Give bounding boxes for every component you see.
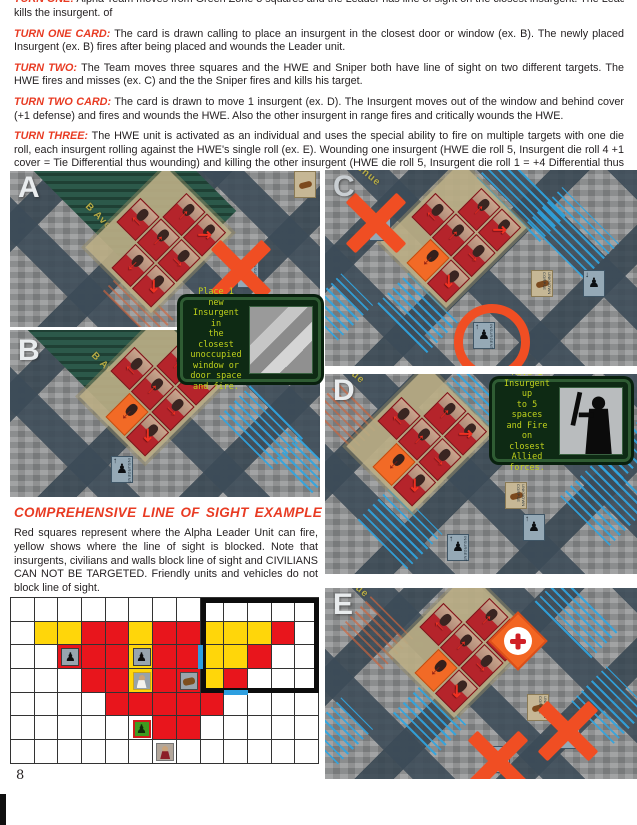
grid-cell bbox=[35, 598, 59, 622]
grid-cell bbox=[153, 645, 177, 669]
grid-cell bbox=[248, 598, 272, 622]
unit-vehicle bbox=[180, 672, 198, 690]
grid-cell bbox=[272, 669, 296, 693]
grid-cell bbox=[272, 622, 296, 646]
chip-label: INSURGENT bbox=[463, 536, 468, 561]
grid-cell bbox=[35, 645, 59, 669]
grid-cell bbox=[295, 693, 319, 717]
los-heading: COMPREHENSIVE LINE OF SIGHT EXAMPLE bbox=[14, 505, 322, 520]
killed-x-marker bbox=[467, 730, 529, 779]
grid-cell bbox=[248, 669, 272, 693]
unit-leader: ♟ bbox=[133, 720, 151, 738]
grid-cell bbox=[35, 693, 59, 717]
grid-cell bbox=[272, 598, 296, 622]
grid-cell bbox=[11, 645, 35, 669]
grid-cell bbox=[272, 716, 296, 740]
window-marker bbox=[224, 690, 248, 695]
board-example-e: E ue ↑↗←↑→↓↘ UNKNOWN CORPSE ♟ ↑ ♟ bbox=[325, 588, 637, 779]
grid-cell bbox=[106, 740, 130, 764]
unit-civilian bbox=[133, 672, 151, 690]
grid-cell bbox=[82, 740, 106, 764]
corpse-icon bbox=[298, 180, 312, 189]
panel-label-a: A bbox=[18, 173, 40, 203]
chip-label: INSURGENT bbox=[127, 458, 132, 483]
grid-cell bbox=[248, 622, 272, 646]
grid-cell bbox=[248, 716, 272, 740]
grid-cell bbox=[153, 669, 177, 693]
grid-cell bbox=[201, 598, 225, 622]
grid-cell bbox=[106, 645, 130, 669]
grid-cell bbox=[35, 622, 59, 646]
grid-cell bbox=[153, 598, 177, 622]
board-example-c: C enue ↑↗←↑→↓↘ ↑ ♟ UNKNOWN CORPSE ↓ ♟ ↑ … bbox=[325, 170, 637, 366]
grid-cell bbox=[58, 716, 82, 740]
grid-cell bbox=[106, 693, 130, 717]
turn-one-tail: kills the insurgent. of bbox=[14, 7, 624, 21]
grid-cell bbox=[295, 740, 319, 764]
window-marker bbox=[198, 645, 203, 669]
target-circle-marker bbox=[454, 304, 530, 366]
street-name: enue bbox=[355, 170, 383, 189]
grid-cell bbox=[224, 598, 248, 622]
action-card-move-insurgent: Move 1 Insurgent up to 5 spaces and Fire… bbox=[492, 379, 631, 462]
grid-cell bbox=[106, 669, 130, 693]
grid-cell bbox=[295, 716, 319, 740]
grid-cell bbox=[295, 622, 319, 646]
vehicle-icon bbox=[182, 676, 195, 685]
blue-hatch bbox=[325, 697, 373, 764]
action-card-text: Place 1 new Insurgent in the closest uno… bbox=[188, 287, 244, 392]
turn-one-label: TURN ONE: bbox=[14, 0, 74, 5]
page-number: 8 bbox=[16, 768, 24, 783]
grid-cell bbox=[177, 598, 201, 622]
grid-cell bbox=[224, 693, 248, 717]
grid-cell bbox=[224, 716, 248, 740]
insurgent-chip: ↑ ♟ bbox=[523, 514, 545, 541]
insurgent-figure-icon: ♟ bbox=[528, 521, 540, 534]
grid-cell bbox=[224, 669, 248, 693]
page-edge-mark bbox=[0, 794, 6, 825]
grid-cell bbox=[129, 693, 153, 717]
insurgent-silhouette-icon bbox=[559, 387, 623, 455]
grid-cell bbox=[58, 740, 82, 764]
grid-cell bbox=[82, 693, 106, 717]
turn-two-card-label: TURN TWO CARD: bbox=[14, 96, 111, 108]
panel-label-e: E bbox=[333, 590, 353, 620]
grid-cell bbox=[58, 693, 82, 717]
grid-cell bbox=[153, 693, 177, 717]
grid-cell bbox=[248, 645, 272, 669]
satellite-photo-icon bbox=[249, 306, 313, 374]
turn-one-card-label: TURN ONE CARD: bbox=[14, 28, 110, 40]
action-card-text: Move 1 Insurgent up to 5 spaces and Fire… bbox=[500, 374, 554, 473]
grid-cell bbox=[106, 598, 130, 622]
grid-cell bbox=[129, 622, 153, 646]
move-arrow-icon: ↑ bbox=[113, 457, 117, 465]
grid-cell bbox=[201, 645, 225, 669]
grid-cell bbox=[177, 693, 201, 717]
grid-cell bbox=[201, 622, 225, 646]
grid-cell bbox=[295, 669, 319, 693]
grid-cell bbox=[11, 716, 35, 740]
turn-three-label: TURN THREE: bbox=[14, 130, 88, 142]
grid-cell bbox=[11, 740, 35, 764]
corpse-chip: UNKNOWN CORPSE bbox=[505, 482, 527, 509]
civilian-robe-icon bbox=[137, 680, 147, 688]
panel-label-d: D bbox=[333, 376, 355, 406]
grid-cell bbox=[224, 622, 248, 646]
grid-cell bbox=[201, 693, 225, 717]
turn-one-card-paragraph: TURN ONE CARD: The card is drawn calling… bbox=[14, 28, 624, 55]
grid-cell bbox=[58, 669, 82, 693]
unit-insurgent: ♟ bbox=[133, 648, 151, 666]
grid-cell bbox=[35, 669, 59, 693]
chip-label: UNKNOWN CORPSE bbox=[542, 272, 552, 296]
clipped-first-line: TURN ONE: Alpha Team moves from Green Zo… bbox=[14, 0, 624, 7]
turn-one-text: Alpha Team moves from Green Zone 3 squar… bbox=[76, 0, 624, 5]
grid-cell bbox=[82, 645, 106, 669]
insurgent-chip: ↑ ♟ INSURGENT bbox=[447, 534, 469, 561]
grid-cell bbox=[201, 669, 225, 693]
grid-cell bbox=[224, 740, 248, 764]
grid-cell bbox=[248, 693, 272, 717]
blue-hatch bbox=[535, 588, 620, 658]
unit-civilian2 bbox=[156, 743, 174, 761]
move-arrow-icon: ↑ bbox=[449, 535, 453, 543]
grid-cell bbox=[177, 740, 201, 764]
turn-two-paragraph: TURN TWO: The Team moves three squares a… bbox=[14, 62, 624, 89]
grid-cell bbox=[35, 740, 59, 764]
blue-hatch bbox=[325, 273, 373, 340]
move-arrow-icon: ↓ bbox=[585, 271, 589, 279]
unit-insurgent: ♟ bbox=[61, 648, 79, 666]
panel-label-c: C bbox=[333, 172, 355, 202]
los-grid: ♟♟♟ bbox=[10, 597, 319, 764]
grid-cell bbox=[58, 622, 82, 646]
grid-cell bbox=[82, 598, 106, 622]
grid-cell bbox=[177, 645, 201, 669]
grid-cell bbox=[201, 740, 225, 764]
sniper-target-chip: ↓ ♟ bbox=[583, 270, 605, 297]
grid-cell bbox=[272, 693, 296, 717]
grid-cell bbox=[58, 598, 82, 622]
grid-cell bbox=[177, 622, 201, 646]
grid-cell bbox=[153, 622, 177, 646]
insurgent-figure-icon: ♟ bbox=[588, 277, 600, 290]
grid-cell bbox=[224, 645, 248, 669]
grid-cell bbox=[82, 622, 106, 646]
grid-cell bbox=[272, 740, 296, 764]
wound-cross-icon bbox=[504, 627, 532, 655]
turn-two-label: TURN TWO: bbox=[14, 62, 77, 74]
grid-cell bbox=[129, 598, 153, 622]
grid-cell bbox=[11, 622, 35, 646]
move-arrow-icon: ↑ bbox=[525, 515, 529, 523]
los-paragraph: Red squares represent where the Alpha Le… bbox=[14, 527, 318, 596]
grid-cell bbox=[201, 716, 225, 740]
turn-two-card-paragraph: TURN TWO CARD: The card is drawn to move… bbox=[14, 96, 624, 123]
chip-label: UNKNOWN CORPSE bbox=[516, 484, 526, 508]
grid-cell bbox=[295, 598, 319, 622]
grid-cell bbox=[11, 598, 35, 622]
rulebook-page: { "page": {"number": "8"}, "intro": { "c… bbox=[0, 0, 637, 825]
grid-cell bbox=[11, 669, 35, 693]
grid-cell bbox=[35, 716, 59, 740]
action-card-place-insurgent: Place 1 new Insurgent in the closest uno… bbox=[180, 297, 321, 382]
corpse-chip bbox=[294, 171, 316, 198]
grid-cell bbox=[82, 669, 106, 693]
turn-examples-text: TURN ONE: Alpha Team moves from Green Zo… bbox=[14, 0, 624, 192]
grid-cell bbox=[82, 716, 106, 740]
grid-cell bbox=[106, 716, 130, 740]
grid-cell bbox=[295, 645, 319, 669]
grid-cell bbox=[177, 716, 201, 740]
grid-cell bbox=[153, 716, 177, 740]
civilian-robe-icon bbox=[160, 751, 170, 759]
grid-cell bbox=[11, 693, 35, 717]
insurgent-chip: ↑ ♟ INSURGENT bbox=[111, 456, 133, 483]
killed-x-marker bbox=[537, 700, 599, 762]
board-example-d: D ue ↑↗←↑→↓↘ UNKNOWN CORPSE ↑ ♟ ↑ ♟ INSU… bbox=[325, 374, 637, 574]
grid-cell bbox=[248, 740, 272, 764]
grid-cell bbox=[106, 622, 130, 646]
grid-cell bbox=[129, 740, 153, 764]
grid-cell bbox=[272, 645, 296, 669]
panel-label-b: B bbox=[18, 336, 40, 366]
corpse-chip: UNKNOWN CORPSE bbox=[531, 270, 553, 297]
